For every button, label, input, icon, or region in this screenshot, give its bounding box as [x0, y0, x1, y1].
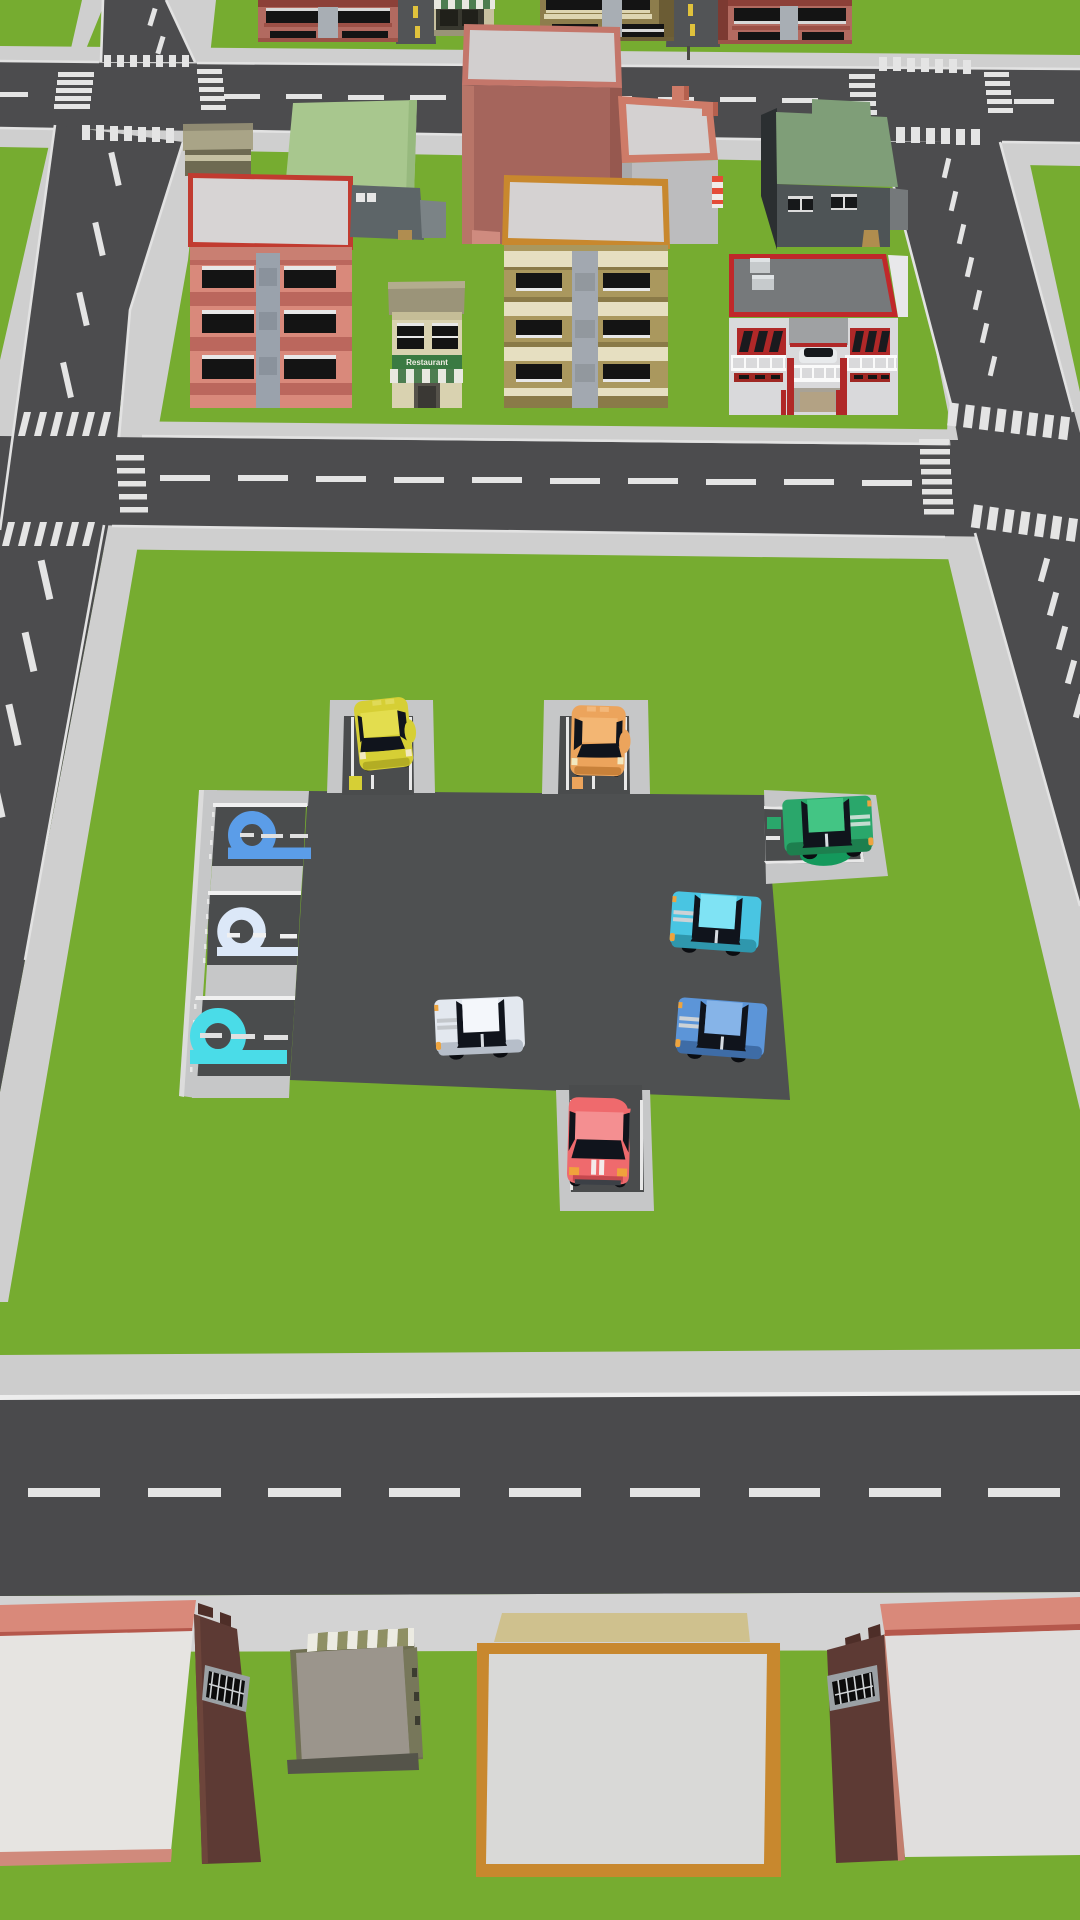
- svg-text:Restaurant: Restaurant: [406, 358, 448, 367]
